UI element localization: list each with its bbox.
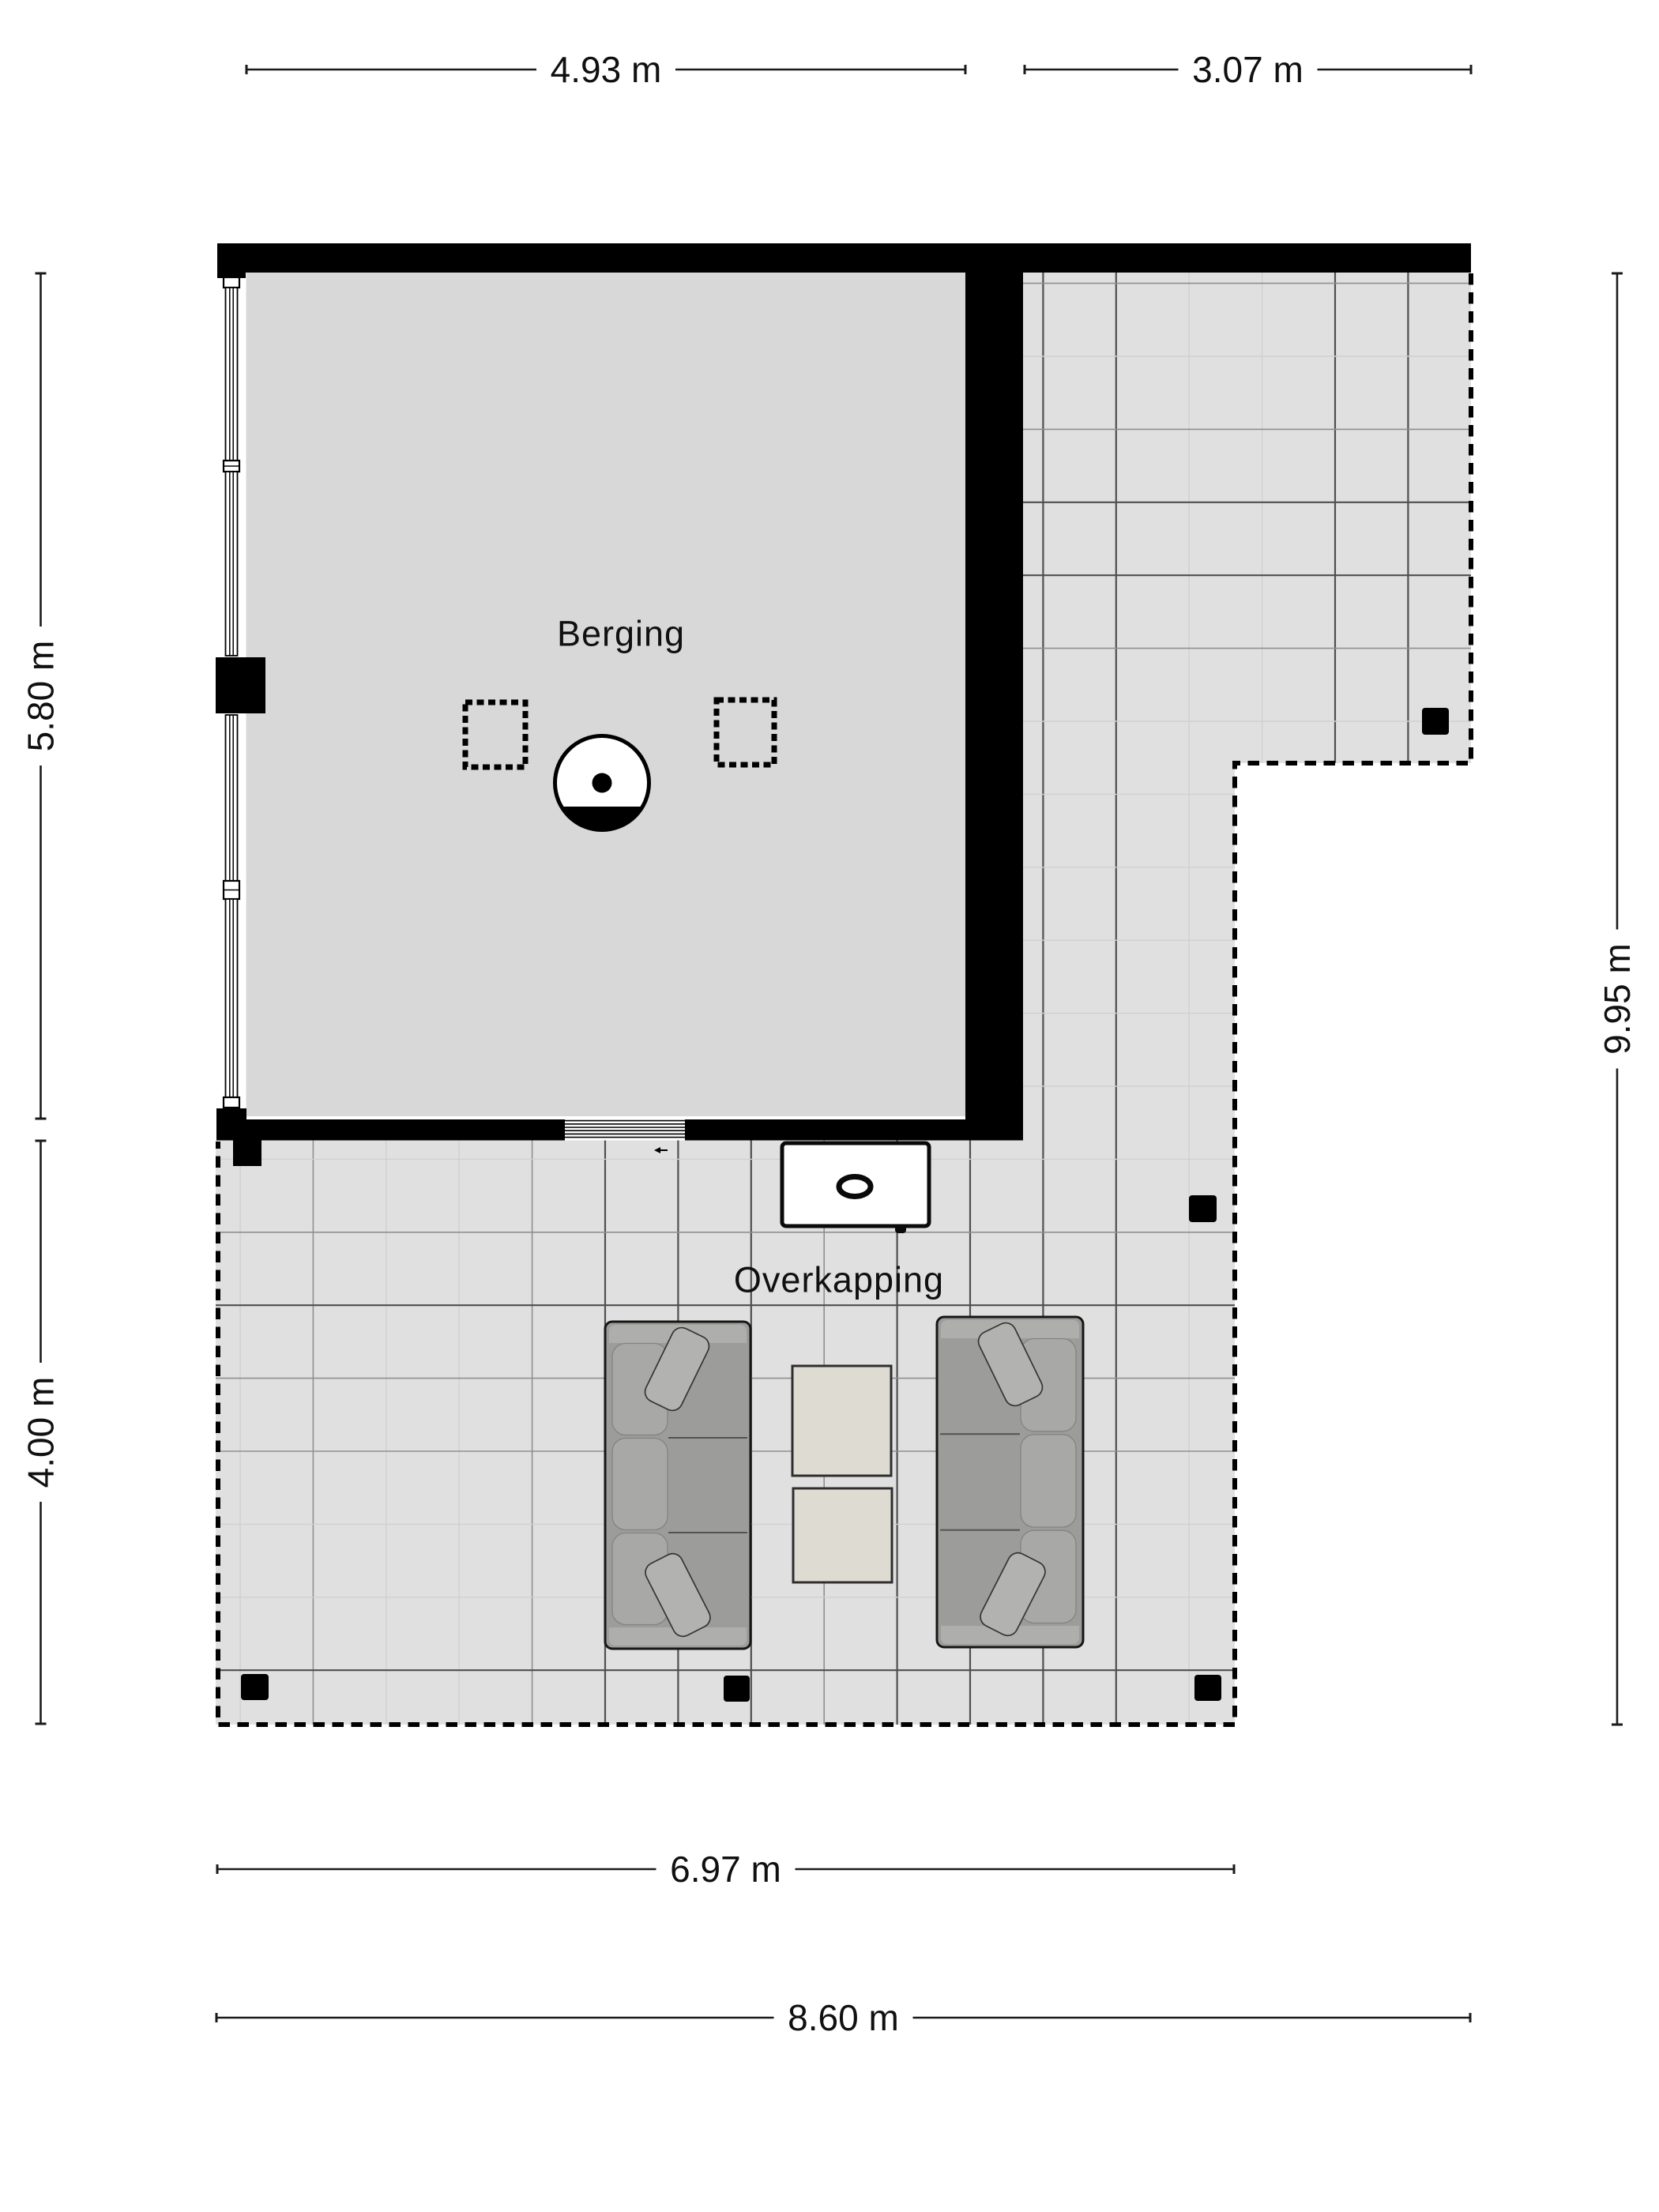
svg-text:9.95 m: 9.95 m xyxy=(1597,943,1638,1055)
svg-text:8.60 m: 8.60 m xyxy=(788,1997,899,2038)
svg-text:4.00 m: 4.00 m xyxy=(21,1377,62,1488)
svg-text:3.07 m: 3.07 m xyxy=(1192,49,1303,90)
svg-text:5.80 m: 5.80 m xyxy=(21,641,62,752)
svg-text:Berging: Berging xyxy=(557,614,685,654)
svg-text:4.93 m: 4.93 m xyxy=(551,49,662,90)
svg-text:Overkapping: Overkapping xyxy=(734,1260,944,1300)
svg-text:6.97 m: 6.97 m xyxy=(670,1849,781,1890)
